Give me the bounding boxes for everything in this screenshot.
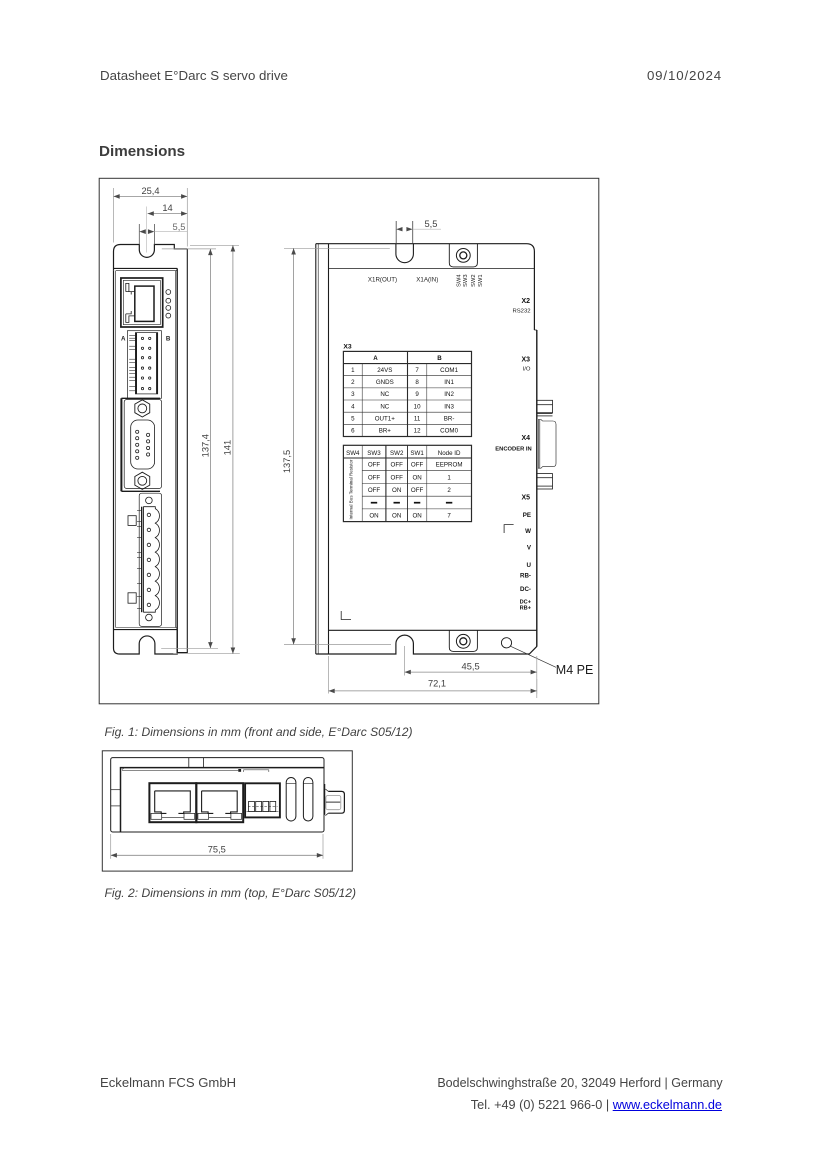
svg-text:9: 9 <box>415 391 419 398</box>
svg-text:SW2: SW2 <box>471 274 477 287</box>
svg-text:BR-: BR- <box>444 416 455 423</box>
svg-text:6: 6 <box>351 428 355 435</box>
svg-text:SW4: SW4 <box>346 450 360 457</box>
svg-text:25,4: 25,4 <box>141 186 159 196</box>
svg-text:COM0: COM0 <box>440 428 458 435</box>
svg-text:OFF: OFF <box>368 487 381 494</box>
svg-text:IN1: IN1 <box>444 379 454 386</box>
svg-text:45,5: 45,5 <box>462 662 480 672</box>
svg-text:2: 2 <box>447 487 451 494</box>
svg-text:B: B <box>437 355 442 362</box>
svg-text:X5: X5 <box>521 495 530 502</box>
svg-text:137,4: 137,4 <box>201 434 211 457</box>
svg-text:X2: X2 <box>521 298 530 305</box>
svg-text:ON: ON <box>369 513 378 520</box>
svg-text:ON: ON <box>392 513 401 520</box>
svg-text:A: A <box>373 355 378 362</box>
svg-text:X1R(OUT): X1R(OUT) <box>368 277 397 284</box>
svg-text:BR+: BR+ <box>379 428 392 435</box>
svg-text:X3: X3 <box>521 357 530 364</box>
svg-text:I/O: I/O <box>523 367 531 373</box>
svg-text:B: B <box>166 335 171 342</box>
svg-text:Internal Bus Terminal Resistor: Internal Bus Terminal Resistor <box>349 459 354 520</box>
svg-text:5: 5 <box>351 416 355 423</box>
svg-text:COM1: COM1 <box>440 367 458 374</box>
svg-text:72,1: 72,1 <box>428 679 446 689</box>
svg-text:7: 7 <box>415 367 419 374</box>
svg-text:SW1: SW1 <box>478 274 484 287</box>
svg-text:OFF: OFF <box>411 487 424 494</box>
svg-text:X4: X4 <box>521 435 530 442</box>
svg-text:PE: PE <box>523 512 531 519</box>
svg-text:ON: ON <box>392 487 401 494</box>
svg-text:137,5: 137,5 <box>282 450 292 473</box>
svg-text:RB+: RB+ <box>520 605 532 611</box>
svg-text:SW4: SW4 <box>457 274 463 287</box>
svg-text:ON: ON <box>412 513 421 520</box>
svg-text:U: U <box>527 562 532 569</box>
svg-text:W: W <box>525 528 531 535</box>
svg-text:1: 1 <box>351 367 355 374</box>
svg-text:Node ID: Node ID <box>438 450 461 457</box>
svg-text:M4 PE: M4 PE <box>556 663 594 677</box>
svg-text:OFF: OFF <box>368 462 381 469</box>
svg-text:OFF: OFF <box>391 474 404 481</box>
svg-text:24VS: 24VS <box>377 367 392 374</box>
svg-text:OFF: OFF <box>411 462 424 469</box>
svg-text:DC-: DC- <box>520 586 531 593</box>
svg-text:4: 4 <box>351 403 355 410</box>
svg-text:1: 1 <box>447 474 451 481</box>
svg-text:NC: NC <box>380 403 389 410</box>
svg-text:SW1: SW1 <box>410 450 424 457</box>
svg-text:141: 141 <box>222 440 232 456</box>
svg-text:10: 10 <box>414 403 421 410</box>
svg-text:OFF: OFF <box>368 474 381 481</box>
svg-text:OUT1+: OUT1+ <box>375 416 396 423</box>
svg-text:SW3: SW3 <box>463 274 469 287</box>
svg-text:SW3: SW3 <box>367 450 381 457</box>
svg-text:OFF: OFF <box>391 462 404 469</box>
svg-text:ON: ON <box>412 474 421 481</box>
svg-text:RB-: RB- <box>520 573 531 580</box>
svg-text:5,5: 5,5 <box>425 219 438 229</box>
svg-text:IN3: IN3 <box>444 403 454 410</box>
svg-text:SW2: SW2 <box>390 450 404 457</box>
svg-text:12: 12 <box>414 428 421 435</box>
svg-text:3: 3 <box>351 391 355 398</box>
svg-text:5,5: 5,5 <box>173 222 186 232</box>
svg-text:GNDS: GNDS <box>376 379 394 386</box>
svg-text:EEPROM: EEPROM <box>436 462 463 469</box>
svg-text:14: 14 <box>162 203 172 213</box>
svg-text:X1A(IN): X1A(IN) <box>416 277 438 284</box>
svg-text:NC: NC <box>380 391 389 398</box>
svg-text:8: 8 <box>415 379 419 386</box>
svg-text:75,5: 75,5 <box>208 844 226 854</box>
svg-text:2: 2 <box>351 379 355 386</box>
svg-text:7: 7 <box>447 513 451 520</box>
svg-text:X3: X3 <box>343 344 352 351</box>
svg-text:IN2: IN2 <box>444 391 454 398</box>
svg-text:11: 11 <box>414 416 421 423</box>
svg-text:A: A <box>121 335 126 342</box>
svg-text:RS232: RS232 <box>512 309 530 315</box>
svg-text:ENCODER IN: ENCODER IN <box>495 447 531 453</box>
